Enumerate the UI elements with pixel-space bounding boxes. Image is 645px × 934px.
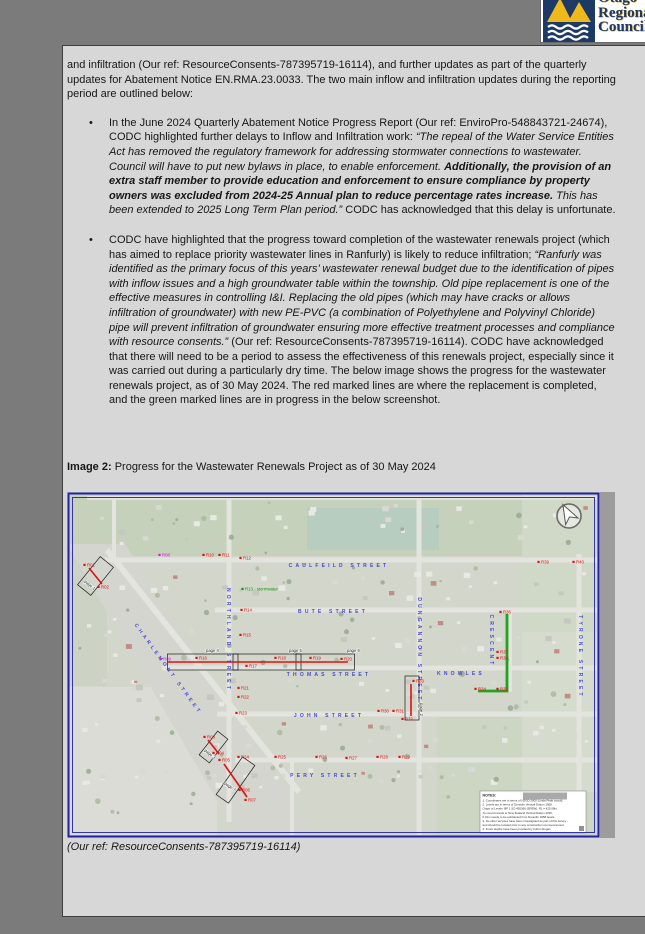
- svg-text:R16: R16: [199, 655, 207, 660]
- svg-text:page 2: page 2: [419, 703, 424, 716]
- svg-text:KNOWLES: KNOWLES: [437, 671, 485, 677]
- notes-box: NOTES:1. Coordinates are in terms of NZG…: [480, 791, 586, 833]
- svg-text:BUTE STREET: BUTE STREET: [298, 609, 368, 615]
- orc-logo-text: Otago Regional Council: [595, 0, 645, 35]
- svg-text:R31: R31: [396, 708, 404, 713]
- svg-text:R11: R11: [222, 552, 230, 557]
- svg-text:THOMAS STREET: THOMAS STREET: [287, 672, 371, 678]
- svg-text:page 4: page 4: [206, 648, 219, 653]
- svg-text:JOHN STREET: JOHN STREET: [294, 713, 364, 719]
- svg-text:CRESCENT: CRESCENT: [488, 614, 494, 667]
- svg-text:R28: R28: [380, 754, 388, 759]
- svg-text:R22: R22: [241, 694, 249, 699]
- svg-text:R18: R18: [278, 655, 286, 660]
- svg-text:R39: R39: [541, 559, 549, 564]
- orc-logo: Otago Regional Council: [540, 0, 645, 43]
- svg-text:R08: R08: [162, 552, 170, 557]
- map-figure: CAULFEILD STREETBUTE STREETTHOMAS STREET…: [67, 492, 615, 838]
- svg-text:R38: R38: [500, 655, 508, 660]
- svg-text:R10: R10: [206, 552, 214, 557]
- svg-text:R17: R17: [249, 663, 257, 668]
- svg-text:R04: R04: [216, 750, 224, 755]
- document-page: and infiltration (Our ref: ResourceConse…: [62, 45, 645, 917]
- svg-text:R14: R14: [244, 607, 252, 612]
- svg-text:R06: R06: [242, 787, 250, 792]
- svg-text:R29: R29: [402, 754, 410, 759]
- svg-text:R30: R30: [381, 708, 389, 713]
- svg-text:R02: R02: [101, 584, 109, 589]
- svg-text:R32: R32: [405, 716, 413, 721]
- svg-text:R40: R40: [576, 559, 584, 564]
- image-caption: Image 2: Progress for the Wastewater Ren…: [67, 460, 616, 475]
- bullet-list: • In the June 2024 Quarterly Abatement N…: [67, 116, 616, 408]
- aerial-photo-layer: [67, 492, 615, 838]
- svg-text:R13 - stormwater: R13 - stormwater: [245, 586, 279, 591]
- svg-text:R37: R37: [500, 649, 508, 654]
- bullet-marker: •: [89, 233, 109, 408]
- svg-text:TYRONE STREET: TYRONE STREET: [577, 615, 583, 699]
- svg-text:R19: R19: [313, 655, 321, 660]
- svg-text:R23: R23: [239, 710, 247, 715]
- bullet-marker: •: [89, 116, 109, 218]
- svg-text:page 5: page 5: [289, 648, 302, 653]
- bullet-2-text: CODC have highlighted that the progress …: [109, 233, 616, 408]
- svg-text:page 6: page 6: [347, 648, 360, 653]
- svg-text:R34: R34: [478, 686, 486, 691]
- svg-text:R01: R01: [87, 562, 95, 567]
- svg-text:R27: R27: [349, 755, 357, 760]
- wastewater-renewals-map: CAULFEILD STREETBUTE STREETTHOMAS STREET…: [67, 492, 615, 838]
- svg-text:NOTES:: NOTES:: [483, 793, 497, 797]
- svg-text:R20: R20: [344, 656, 352, 661]
- bullet-item-1: • In the June 2024 Quarterly Abatement N…: [67, 116, 616, 218]
- svg-text:R33: R33: [416, 678, 424, 683]
- screenshot-root: Otago Regional Council and infiltration …: [0, 0, 645, 934]
- svg-text:R24: R24: [241, 754, 249, 759]
- svg-text:R15: R15: [243, 632, 251, 637]
- svg-text:R05: R05: [222, 757, 230, 762]
- logo-line-regional: Regional: [598, 6, 645, 21]
- svg-text:R09: R09: [163, 656, 171, 661]
- bullet-item-2: • CODC have highlighted that the progres…: [67, 233, 616, 408]
- svg-text:DUNGANNON STREET: DUNGANNON STREET: [416, 597, 422, 702]
- svg-text:R21: R21: [241, 685, 249, 690]
- svg-text:R26: R26: [319, 754, 327, 759]
- bullet-1-text: In the June 2024 Quarterly Abatement Not…: [109, 116, 616, 218]
- svg-text:PERY STREET: PERY STREET: [290, 773, 360, 779]
- intro-paragraph: and infiltration (Our ref: ResourceConse…: [67, 58, 616, 102]
- svg-text:R07: R07: [248, 797, 256, 802]
- svg-text:R36: R36: [503, 609, 511, 614]
- svg-text:R35: R35: [500, 686, 508, 691]
- document-content: and infiltration (Our ref: ResourceConse…: [67, 58, 616, 854]
- svg-text:4. Invert depths have been pro: 4. Invert depths have been provided by F…: [483, 827, 552, 831]
- orc-logo-mark-icon: [543, 0, 595, 42]
- logo-line-council: Council: [598, 20, 645, 35]
- svg-text:R12: R12: [243, 555, 251, 560]
- map-edge-strip: [600, 492, 615, 838]
- svg-text:CAULFEILD STREET: CAULFEILD STREET: [289, 563, 390, 569]
- svg-text:NORTHLAND STREET: NORTHLAND STREET: [225, 588, 231, 692]
- svg-text:R25: R25: [278, 754, 286, 759]
- svg-text:R03: R03: [207, 734, 215, 739]
- our-ref-caption: (Our ref: ResourceConsents-787395719-161…: [67, 840, 616, 855]
